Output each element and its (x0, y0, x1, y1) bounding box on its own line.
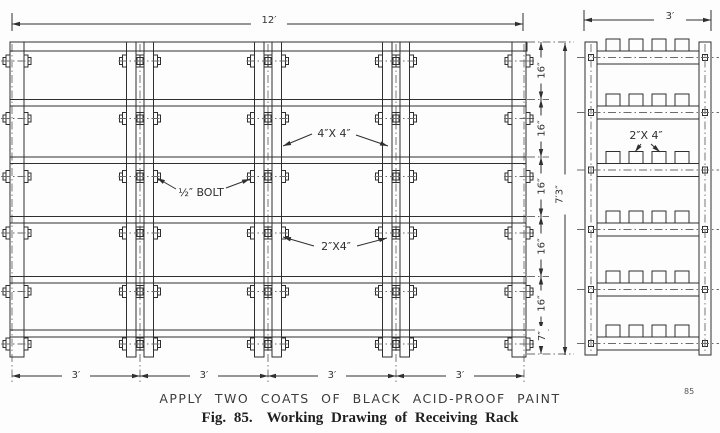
rack-drawing (0, 0, 720, 433)
dim-row-1: 16″ (536, 116, 549, 142)
dim-side-depth: 3′ (654, 10, 686, 23)
paint-note: APPLY TWO COATS OF BLACK ACID-PROOF PAIN… (0, 391, 720, 406)
dim-row-2: 16″ (536, 174, 549, 200)
dim-bay-0: 3′ (62, 369, 90, 382)
label-bolt-size: ½″ BOLT (169, 186, 233, 199)
label-post-size: 4″X 4″ (306, 127, 362, 140)
figure-caption: Fig. 85.Working Drawing of Receiving Rac… (0, 410, 720, 427)
dim-row-3: 16″ (536, 234, 549, 260)
dim-overall-width: 12′ (251, 14, 287, 27)
dim-bay-3: 3′ (446, 369, 474, 382)
dim-bay-1: 3′ (190, 369, 218, 382)
page-number: 85 (684, 387, 694, 396)
dim-row-4: 16″ (536, 291, 549, 317)
figure-canvas: 12′ 3′ 3′ 3′ 3′ 3′ 16″ 16″ 16″ 16″ 16″ 7… (0, 0, 720, 433)
dim-bottom-offset: 7″ (536, 326, 548, 346)
figure-caption-number: Fig. 85. (202, 410, 253, 426)
dim-overall-height: 7′3″ (554, 175, 567, 215)
dim-bay-2: 3′ (318, 369, 346, 382)
label-rail-size: 2″X4″ (310, 240, 362, 253)
label-side-slat-size: 2″X 4″ (619, 129, 673, 142)
dim-row-0: 16″ (536, 58, 549, 84)
figure-caption-title: Working Drawing of Receiving Rack (267, 410, 519, 426)
